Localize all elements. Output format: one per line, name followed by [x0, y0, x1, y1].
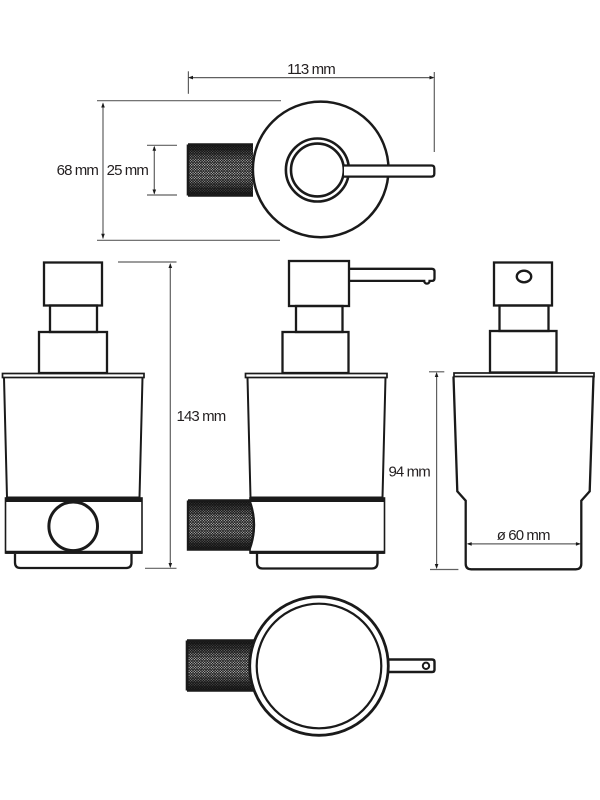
svg-text:68 mm: 68 mm	[57, 162, 99, 179]
svg-text:113 mm: 113 mm	[287, 61, 335, 78]
svg-text:25 mm: 25 mm	[107, 162, 149, 179]
svg-text:94 mm: 94 mm	[388, 464, 430, 481]
svg-text:143 mm: 143 mm	[177, 408, 226, 425]
svg-text:ø 60 mm: ø 60 mm	[497, 527, 550, 544]
